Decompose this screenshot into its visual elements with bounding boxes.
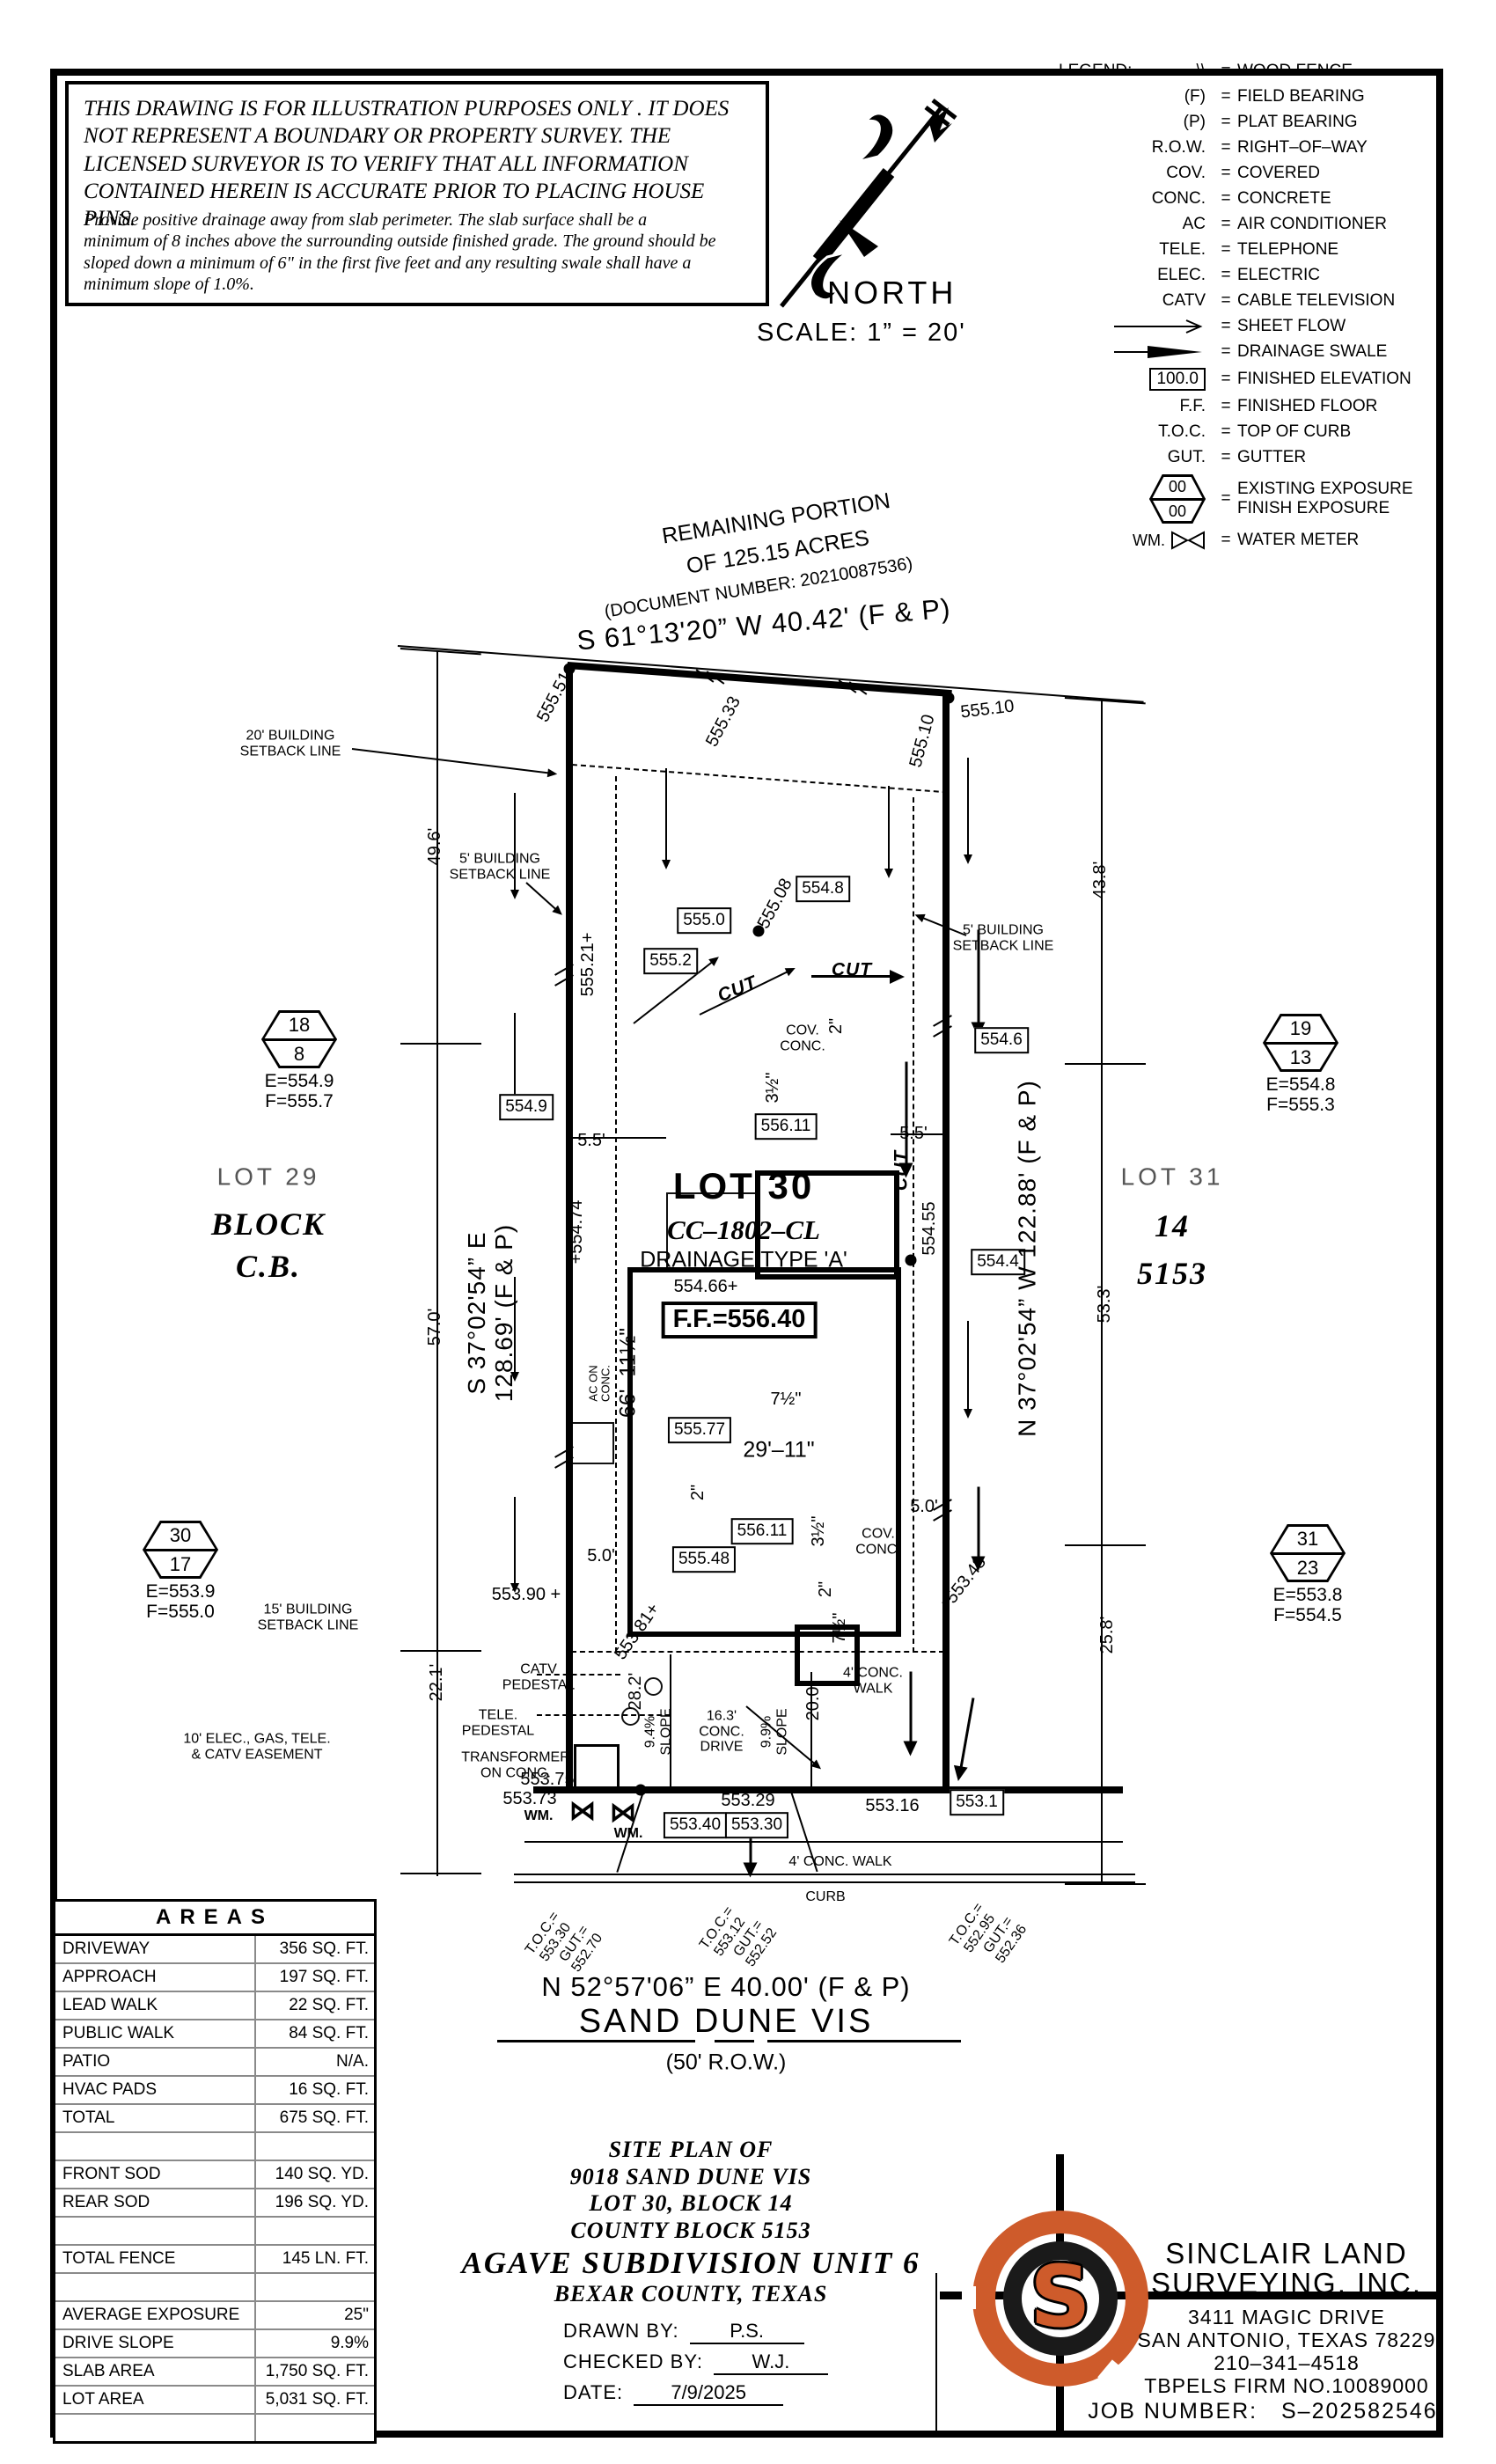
areas-row-value: 5,031 SQ. FT. [256, 2390, 374, 2409]
areas-row-label: DRIVEWAY [55, 1936, 256, 1962]
plan-label: 553.29 [721, 1791, 774, 1810]
benchmark-hexagon: 31 23 [1270, 1524, 1346, 1582]
plan-label: 5.0' [910, 1497, 938, 1516]
plan-label: 553.40 [664, 1812, 727, 1838]
setback-line [615, 776, 617, 1653]
plan-label: 3½" [763, 1073, 782, 1104]
plan-label: 5153 [1137, 1257, 1207, 1292]
plan-label: N 52°57'06” E 40.00' (F & P) [541, 1972, 910, 2002]
plan-label: COV. CONC. [855, 1526, 901, 1557]
plan-label: 555.48 [672, 1546, 736, 1573]
plan-label: LOT 31 [1121, 1164, 1224, 1192]
checked-by-value: W.J. [714, 2350, 828, 2375]
benchmark-elevations: E=553.9 F=555.0 [143, 1581, 218, 1622]
plan-label: 553.30 [725, 1812, 788, 1838]
plan-label: BLOCK [211, 1207, 326, 1243]
benchmark-top-number: 30 [170, 1526, 191, 1545]
plan-label: 43.8' [1090, 862, 1110, 899]
job-number-line: JOB NUMBER: S–202582546 [1016, 2399, 1496, 2424]
title-block: SITE PLAN OF9018 SAND DUNE VISLOT 30, BL… [444, 2137, 937, 2308]
plan-label: ⋈ [610, 1799, 636, 1828]
areas-row-label: AVERAGE EXPOSURE [55, 2302, 256, 2328]
areas-row: AVERAGE EXPOSURE25" [55, 2302, 374, 2330]
plan-label: 554.55 [920, 1201, 939, 1255]
plan-line [533, 1786, 1123, 1793]
setback-line [913, 797, 914, 1653]
plan-label: 5' BUILDING SETBACK LINE [450, 851, 551, 882]
plan-label: S 37°02'54” E 128.69' (F & P) [464, 1224, 518, 1402]
areas-row-value: 22 SQ. FT. [256, 1996, 374, 2015]
ac-pad [570, 1422, 614, 1464]
plan-line [942, 694, 950, 1792]
plan-label: C.B. [236, 1250, 301, 1285]
plan-label: 5.5' [899, 1124, 928, 1143]
plan-label: 553.1 [950, 1789, 1004, 1815]
plan-label: 555.0 [677, 907, 731, 934]
areas-row-value: 145 LN. FT. [256, 2249, 374, 2269]
plan-label: LOT 30 [673, 1166, 814, 1206]
plan-label: 5.5' [577, 1131, 605, 1150]
plan-label: N 37°02'54” W 122.88' (F & P) [1015, 1080, 1042, 1437]
plan-label: 22.1' [427, 1664, 446, 1702]
plan-label: 2" [688, 1485, 708, 1500]
plan-label: ⋈ [569, 1797, 596, 1826]
firm-name-line1: SINCLAIR LAND [1058, 2237, 1496, 2270]
signoff-block: DRAWN BY: P.S. CHECKED BY: W.J. DATE: 7/… [563, 2320, 828, 2412]
plan-line [1065, 1544, 1146, 1546]
areas-row-label: DRIVE SLOPE [55, 2330, 256, 2357]
areas-row-label [55, 2415, 256, 2441]
plan-label: 66'–11½" [616, 1328, 641, 1418]
areas-row: TOTAL675 SQ. FT. [55, 2105, 374, 2133]
areas-row-value: 9.9% [256, 2334, 374, 2353]
areas-row-value: 140 SQ. YD. [256, 2165, 374, 2184]
title-block-line: BEXAR COUNTY, TEXAS [444, 2281, 937, 2308]
areas-row-label: FRONT SOD [55, 2161, 256, 2188]
plan-label: CUT [891, 1150, 911, 1191]
benchmark-top-number: 19 [1290, 1019, 1311, 1038]
plan-label: CUT [715, 972, 759, 1007]
plan-label: 28.2' [626, 1673, 645, 1711]
areas-row: FRONT SOD140 SQ. YD. [55, 2161, 374, 2189]
plan-label: F.F.=556.40 [662, 1302, 818, 1338]
plan-label: TELE. PEDESTAL [462, 1707, 534, 1738]
areas-row: HVAC PADS16 SQ. FT. [55, 2077, 374, 2105]
firm-divider-vertical [935, 2273, 937, 2431]
plan-label: 553.73 [502, 1789, 556, 1808]
flow-arrow [910, 1672, 913, 1753]
plan-label: SAND DUNE VIS [579, 2004, 874, 2041]
title-block-line: SITE PLAN OF [444, 2137, 937, 2164]
plan-label: 57.0' [425, 1309, 444, 1346]
benchmark-bottom-number: 23 [1297, 1558, 1318, 1578]
firm-name-line2: SURVEYING, INC. [1058, 2267, 1496, 2300]
flow-arrow [352, 748, 555, 774]
flow-arrow [665, 768, 667, 867]
benchmark-marker: 18 8E=554.9 F=555.7 [261, 1010, 337, 1111]
plan-label: 4' CONC. WALK [788, 1854, 891, 1870]
benchmark-marker: 19 13E=554.8 F=555.3 [1263, 1014, 1338, 1115]
plan-label: 5.0' [587, 1546, 615, 1566]
plan-label: 555.2 [643, 948, 698, 974]
areas-row-label [55, 2133, 256, 2160]
plan-label: 49.6' [425, 828, 444, 866]
areas-table: AREAS DRIVEWAY356 SQ. FT.APPROACH197 SQ.… [53, 1899, 377, 2444]
plan-line [398, 645, 1144, 703]
areas-row: LOT AREA5,031 SQ. FT. [55, 2387, 374, 2415]
benchmark-top-number: 18 [289, 1016, 310, 1035]
areas-row [55, 2415, 374, 2441]
plan-label: CURB [805, 1889, 845, 1905]
areas-row: DRIVE SLOPE9.9% [55, 2330, 374, 2358]
areas-row: REAR SOD196 SQ. YD. [55, 2189, 374, 2218]
plan-label: DRAINAGE TYPE 'A' [640, 1248, 847, 1272]
date-value: 7/9/2025 [634, 2381, 783, 2406]
areas-row-value: 84 SQ. FT. [256, 2024, 374, 2043]
benchmark-bottom-number: 8 [294, 1045, 304, 1064]
benchmark-hexagon: 19 13 [1263, 1014, 1338, 1072]
areas-table-title: AREAS [55, 1902, 374, 1936]
areas-row-label: TOTAL FENCE [55, 2246, 256, 2272]
areas-row-label: LEAD WALK [55, 1992, 256, 2019]
areas-row-value: 675 SQ. FT. [256, 2108, 374, 2128]
drawn-by-value: P.S. [690, 2320, 804, 2344]
areas-row: PUBLIC WALK84 SQ. FT. [55, 2020, 374, 2049]
job-number-label: JOB NUMBER: [1088, 2399, 1258, 2424]
plan-label: 14 [1155, 1209, 1190, 1244]
plan-label: +555.08 [749, 876, 796, 942]
areas-row-label: SLAB AREA [55, 2358, 256, 2385]
plan-label: 15' BUILDING SETBACK LINE [258, 1602, 359, 1632]
firm-address-line: SAN ANTONIO, TEXAS 78229 [1058, 2328, 1496, 2352]
plan-line [400, 1043, 481, 1045]
plan-label: 10' ELEC., GAS, TELE. & CATV EASEMENT [183, 1731, 330, 1762]
benchmark-top-number: 31 [1297, 1529, 1318, 1549]
plan-label: LOT 29 [217, 1164, 320, 1192]
plan-label: 555.10 [959, 696, 1015, 722]
plan-label: WM. [614, 1826, 643, 1842]
plan-line [400, 1650, 481, 1652]
areas-row: SLAB AREA1,750 SQ. FT. [55, 2358, 374, 2387]
plan-label: 9.9% SLOPE [759, 1708, 789, 1755]
areas-row: DRIVEWAY356 SQ. FT. [55, 1936, 374, 1964]
plan-label: 7½" [830, 1613, 849, 1644]
plan-label: 29'–11" [743, 1438, 814, 1463]
benchmark-bottom-number: 17 [170, 1555, 191, 1574]
areas-row [55, 2274, 374, 2302]
catv-pedestal-symbol [644, 1677, 663, 1696]
logo-letter: S [1030, 2248, 1090, 2346]
flow-arrow [525, 882, 561, 913]
plan-line [1065, 1063, 1146, 1065]
plan-label: 7½" [771, 1390, 802, 1409]
areas-row: PATION/A. [55, 2049, 374, 2077]
benchmark-bottom-number: 13 [1290, 1048, 1311, 1067]
plan-label: 9.4% SLOPE [642, 1708, 673, 1755]
areas-row-label [55, 2274, 256, 2300]
areas-row-value: 25" [256, 2306, 374, 2325]
plan-label: 4' CONC. WALK [843, 1665, 903, 1696]
areas-row-label: TOTAL [55, 2105, 256, 2131]
plan-label: 553.90 + [492, 1585, 561, 1604]
flow-arrow [888, 786, 890, 876]
plan-label: 554.6 [974, 1027, 1029, 1053]
plan-label: 553.16 [865, 1796, 919, 1815]
areas-row-label: HVAC PADS [55, 2077, 256, 2103]
firm-address-line: 210–341–4518 [1058, 2351, 1496, 2375]
areas-row-label: PUBLIC WALK [55, 2020, 256, 2047]
plan-label: WM. [524, 1808, 554, 1824]
plan-line [514, 1881, 1135, 1883]
transformer-pad [574, 1744, 620, 1790]
flow-arrow [514, 1497, 516, 1590]
plan-line [567, 662, 951, 697]
plan-label: 554.66+ [674, 1277, 738, 1296]
areas-row-value: 1,750 SQ. FT. [256, 2362, 374, 2381]
benchmark-hexagon: 18 8 [261, 1010, 337, 1068]
flow-arrow [967, 758, 969, 862]
plan-label: COV. CONC. [780, 1023, 825, 1053]
plan-label: 20.0' [803, 1683, 823, 1721]
title-block-line: 9018 SAND DUNE VIS [444, 2164, 937, 2191]
title-block-line: LOT 30, BLOCK 14 [444, 2190, 937, 2218]
benchmark-elevations: E=554.8 F=555.3 [1263, 1074, 1338, 1115]
plan-label: 555.21+ [578, 933, 598, 997]
plan-label: 555.10 [906, 713, 938, 770]
plan-label: CC–1802–CL [667, 1215, 820, 1245]
plan-label: CATV PEDESTAL [502, 1661, 575, 1692]
firm-address-line: TBPELS FIRM NO.10089000 [1058, 2374, 1496, 2398]
areas-row: LEAD WALK22 SQ. FT. [55, 1992, 374, 2020]
areas-row-label: REAR SOD [55, 2189, 256, 2216]
plan-label: 555.77 [668, 1417, 731, 1443]
benchmark-marker: 31 23E=553.8 F=554.5 [1270, 1524, 1346, 1625]
plan-label: 3½" [809, 1516, 828, 1547]
plan-label: 16.3' CONC. DRIVE [699, 1709, 744, 1756]
plan-label: 554.9 [499, 1094, 554, 1120]
plan-label: 554.8 [796, 876, 850, 902]
plan-label: AC ON CONC. [588, 1365, 613, 1402]
logo-ring-gap [962, 2286, 976, 2309]
benchmark-hexagon: 30 17 [143, 1521, 218, 1579]
areas-row-label: APPROACH [55, 1964, 256, 1991]
plan-label: 25.8' [1097, 1617, 1117, 1654]
areas-row-label: PATIO [55, 2049, 256, 2075]
drawn-by-label: DRAWN BY: [563, 2320, 679, 2343]
areas-row-value: 16 SQ. FT. [256, 2080, 374, 2100]
plan-label: 20' BUILDING SETBACK LINE [240, 728, 341, 759]
plan-label: 556.11 [731, 1518, 794, 1544]
benchmark-elevations: E=553.8 F=554.5 [1270, 1585, 1346, 1625]
plan-label: 5' BUILDING SETBACK LINE [953, 922, 1054, 953]
plan-label: CUT [832, 959, 872, 979]
checked-by-label: CHECKED BY: [563, 2350, 703, 2373]
plan-label: 2" [826, 1018, 846, 1034]
areas-row [55, 2218, 374, 2246]
firm-address-line: 3411 MAGIC DRIVE [1058, 2306, 1496, 2329]
plan-line [514, 1874, 1135, 1875]
site-plan-sheet: THIS DRAWING IS FOR ILLUSTRATION PURPOSE… [0, 0, 1496, 2464]
plan-line [1065, 1883, 1146, 1885]
areas-row: TOTAL FENCE145 LN. FT. [55, 2246, 374, 2274]
plan-line [400, 1873, 481, 1874]
plan-label: 53.3' [1095, 1286, 1114, 1324]
plan-label: 556.11 [755, 1113, 818, 1140]
boundary-corner-dot [943, 693, 955, 704]
areas-row-value: 196 SQ. YD. [256, 2193, 374, 2212]
plan-label: (50' R.O.W.) [666, 2050, 787, 2075]
benchmark-marker: 30 17E=553.9 F=555.0 [143, 1521, 218, 1622]
benchmark-elevations: E=554.9 F=555.7 [261, 1071, 337, 1111]
flow-arrow [958, 1698, 975, 1778]
areas-row-value: N/A. [256, 2052, 374, 2072]
boundary-corner-dot [635, 1785, 647, 1796]
title-block-line: AGAVE SUBDIVISION UNIT 6 [444, 2245, 937, 2281]
job-number-value: S–202582546 [1281, 2399, 1438, 2424]
setback-line [572, 764, 948, 793]
plan-label: 555.33 [702, 693, 744, 750]
areas-row-value: 356 SQ. FT. [256, 1940, 374, 1959]
plan-label: +554.74 [567, 1200, 586, 1265]
areas-row [55, 2133, 374, 2161]
plan-label: 553.75 [520, 1770, 574, 1789]
areas-row: APPROACH197 SQ. FT. [55, 1964, 374, 1992]
areas-row-value: 197 SQ. FT. [256, 1968, 374, 1987]
flow-arrow [967, 1321, 969, 1416]
plan-label: 2" [816, 1581, 835, 1597]
areas-row-label [55, 2218, 256, 2244]
date-label: DATE: [563, 2381, 623, 2404]
title-block-line: COUNTY BLOCK 5153 [444, 2218, 937, 2245]
boundary-corner-dot [906, 1255, 917, 1266]
areas-row-label: LOT AREA [55, 2387, 256, 2413]
